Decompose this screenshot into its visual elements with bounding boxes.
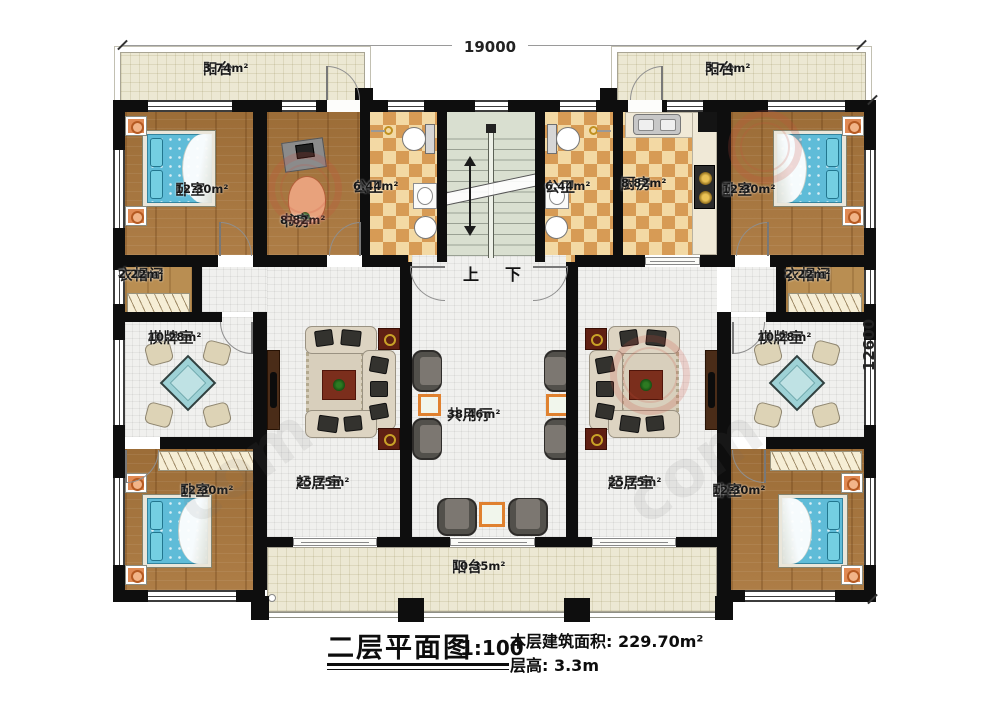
cushion bbox=[314, 329, 334, 347]
nightstand bbox=[843, 117, 863, 135]
pillow bbox=[826, 170, 839, 199]
wall bbox=[535, 112, 545, 262]
tea-table bbox=[479, 502, 505, 527]
window bbox=[864, 478, 876, 565]
kitchen-sliding-door bbox=[645, 257, 700, 265]
wall bbox=[113, 312, 222, 322]
plan-title: 二层平面图 bbox=[327, 626, 472, 665]
title-underline bbox=[327, 663, 509, 666]
dimension-width: 19000 bbox=[452, 38, 528, 56]
balcony-bottom-floor bbox=[267, 547, 717, 612]
balcony-drain bbox=[268, 594, 276, 602]
seat bbox=[545, 425, 566, 453]
title-underline-thin bbox=[327, 669, 509, 670]
cushion bbox=[369, 356, 390, 375]
nightstand bbox=[126, 117, 146, 135]
round-sink bbox=[545, 216, 568, 239]
wall bbox=[717, 312, 731, 590]
window bbox=[768, 100, 845, 112]
pillar bbox=[715, 596, 733, 620]
plant bbox=[333, 379, 345, 391]
wall bbox=[265, 537, 293, 547]
door-leaf bbox=[359, 222, 361, 256]
nightstand bbox=[842, 474, 862, 492]
wall bbox=[377, 537, 450, 547]
kitchen-sink bbox=[633, 114, 681, 135]
corridor-left-floor bbox=[202, 267, 267, 312]
pillow bbox=[150, 170, 163, 199]
pillow bbox=[826, 138, 839, 167]
wall bbox=[676, 537, 717, 547]
cushion bbox=[619, 329, 639, 347]
side-table bbox=[585, 428, 607, 450]
wardrobe bbox=[770, 451, 862, 471]
fridge bbox=[698, 112, 717, 132]
pillow bbox=[150, 501, 163, 530]
door-leaf bbox=[251, 322, 253, 354]
toilet-tank bbox=[425, 124, 435, 154]
pillar bbox=[564, 598, 590, 622]
cushion bbox=[317, 415, 339, 434]
pillar bbox=[251, 596, 269, 620]
bed bbox=[142, 494, 212, 568]
wall bbox=[700, 255, 735, 267]
balcony-sliding-door bbox=[293, 538, 377, 546]
window bbox=[113, 478, 125, 565]
building-area-text: 本层建筑面积: 229.70m² bbox=[510, 628, 703, 652]
window bbox=[148, 590, 236, 602]
wall bbox=[575, 255, 645, 267]
toilet-bowl bbox=[556, 127, 580, 151]
window bbox=[388, 100, 424, 112]
wall bbox=[253, 100, 267, 255]
door-leaf bbox=[219, 222, 221, 256]
arrow-head-down bbox=[464, 226, 476, 236]
wall bbox=[437, 112, 447, 262]
stairs-down-label: 下 bbox=[505, 261, 521, 285]
side-table bbox=[378, 328, 400, 350]
pillar bbox=[398, 598, 424, 622]
arrow-head-up bbox=[464, 156, 476, 166]
window bbox=[113, 150, 125, 228]
stove bbox=[694, 165, 715, 209]
towel-ring bbox=[384, 126, 393, 135]
window bbox=[282, 100, 316, 112]
window bbox=[745, 590, 835, 602]
cushion bbox=[596, 381, 614, 397]
door-leaf bbox=[767, 222, 769, 256]
tv bbox=[708, 372, 715, 408]
wall bbox=[535, 537, 592, 547]
door-opening bbox=[327, 100, 360, 112]
seat bbox=[420, 357, 441, 385]
window bbox=[148, 100, 232, 112]
door-leaf bbox=[732, 322, 734, 354]
corridor-right-floor bbox=[731, 267, 776, 312]
wall bbox=[566, 262, 578, 547]
wall bbox=[160, 437, 265, 449]
armchair bbox=[437, 498, 477, 536]
window bbox=[475, 100, 508, 112]
cushion bbox=[595, 356, 616, 375]
stair-rail-post bbox=[486, 124, 496, 133]
balcony-sliding-door bbox=[592, 538, 676, 546]
balcony-bottom-rail bbox=[267, 612, 717, 618]
seat bbox=[420, 425, 441, 453]
armchair bbox=[412, 418, 442, 460]
wall bbox=[113, 255, 218, 267]
nightstand bbox=[126, 566, 146, 584]
stair-direction-arrow bbox=[469, 165, 471, 227]
wall bbox=[766, 437, 876, 449]
window bbox=[560, 100, 596, 112]
monitor bbox=[295, 143, 315, 159]
tea-table bbox=[418, 394, 441, 416]
burner bbox=[699, 172, 712, 185]
door-opening bbox=[628, 100, 662, 112]
wall bbox=[717, 100, 731, 255]
cushion bbox=[370, 381, 388, 397]
wall bbox=[253, 312, 267, 590]
cushion bbox=[595, 403, 615, 421]
cushion bbox=[369, 403, 389, 421]
wall bbox=[770, 255, 876, 267]
window bbox=[864, 150, 876, 228]
cushion bbox=[645, 329, 667, 347]
floor-height-text: 层高: 3.3m bbox=[510, 652, 599, 676]
armchair bbox=[508, 498, 548, 536]
window bbox=[864, 270, 876, 304]
seat bbox=[545, 357, 566, 385]
toilet-bowl bbox=[402, 127, 426, 151]
door-leaf bbox=[533, 266, 568, 268]
pillow bbox=[150, 138, 163, 167]
side-table bbox=[378, 428, 400, 450]
door-leaf bbox=[326, 66, 328, 100]
sink-basin bbox=[660, 119, 676, 131]
cushion bbox=[340, 329, 362, 347]
pillow bbox=[150, 532, 163, 561]
door-leaf bbox=[661, 66, 663, 100]
sofa bbox=[305, 410, 377, 438]
nightstand bbox=[843, 207, 863, 225]
bed bbox=[778, 494, 848, 568]
bed bbox=[773, 130, 847, 207]
seat bbox=[516, 499, 540, 529]
vanity-sink bbox=[413, 183, 437, 209]
nightstand bbox=[126, 207, 146, 225]
window bbox=[667, 100, 703, 112]
armchair bbox=[412, 350, 442, 392]
cushion bbox=[619, 415, 641, 434]
pillar bbox=[600, 88, 617, 102]
side-table bbox=[585, 328, 607, 350]
pillow bbox=[827, 532, 840, 561]
balcony-sliding-door bbox=[450, 538, 535, 546]
round-sink bbox=[414, 216, 437, 239]
nightstand bbox=[842, 566, 862, 584]
wardrobe bbox=[158, 451, 254, 471]
cushion bbox=[343, 415, 362, 432]
towel-bar bbox=[371, 130, 385, 132]
door-leaf bbox=[410, 266, 445, 268]
window bbox=[113, 340, 125, 425]
dimension-height: 12600 bbox=[860, 314, 878, 376]
sink-basin bbox=[638, 119, 654, 131]
cushion bbox=[645, 415, 664, 432]
seat bbox=[445, 499, 469, 529]
floor-plan: 上 下 bbox=[0, 0, 1000, 706]
pillow bbox=[827, 501, 840, 530]
wall bbox=[253, 255, 327, 267]
plant bbox=[640, 379, 652, 391]
towel-bar bbox=[597, 130, 611, 132]
wall bbox=[400, 262, 412, 547]
stairs-up-label: 上 bbox=[463, 261, 479, 285]
tv bbox=[270, 372, 277, 408]
burner bbox=[699, 191, 712, 204]
door-leaf bbox=[764, 450, 766, 483]
door-leaf bbox=[125, 450, 127, 483]
